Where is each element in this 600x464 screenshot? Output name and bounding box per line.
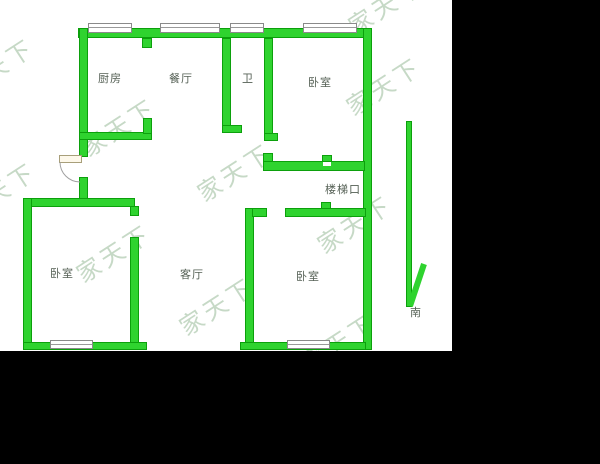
watermark: 家天下 xyxy=(68,214,158,289)
wall xyxy=(363,28,372,350)
room-label-living-room: 客厅 xyxy=(180,266,204,282)
window xyxy=(230,23,264,33)
wall xyxy=(130,206,139,216)
wall xyxy=(23,198,135,207)
wall xyxy=(322,155,332,162)
wall xyxy=(222,38,231,133)
watermark: 家天下 xyxy=(0,28,41,103)
room-label-bathroom: 卫 xyxy=(242,70,254,86)
wall xyxy=(252,208,267,217)
room-label-kitchen: 厨房 xyxy=(98,70,122,86)
window xyxy=(88,23,132,33)
room-label-bedroom-south: 卧室 xyxy=(296,268,320,284)
wall xyxy=(321,202,331,209)
window xyxy=(303,23,357,33)
window xyxy=(287,340,330,349)
wall xyxy=(264,38,273,141)
room-label-dining-room: 餐厅 xyxy=(169,70,193,86)
wall xyxy=(130,237,139,350)
room-label-bedroom-southwest: 卧室 xyxy=(50,265,74,281)
wall xyxy=(263,161,365,171)
screenshot-root: 家天下 家天下 家天下 家天下 家天下 家天下 家天下 家天下 家天下 家天下 xyxy=(0,0,600,464)
wall-notch xyxy=(323,162,331,166)
room-label-bedroom-northeast: 卧室 xyxy=(308,74,332,90)
south-label: 南 xyxy=(410,304,422,320)
wall xyxy=(23,198,32,350)
wall xyxy=(245,208,254,350)
wall xyxy=(263,153,273,162)
window xyxy=(160,23,220,33)
watermark: 家天下 xyxy=(189,133,279,208)
wall xyxy=(264,133,278,141)
entry-door-swing-icon xyxy=(56,156,84,184)
window xyxy=(50,340,93,349)
room-label-stair-landing: 楼梯口 xyxy=(325,181,361,197)
wall xyxy=(143,118,152,134)
wall xyxy=(222,125,242,133)
watermark: 家天下 xyxy=(0,152,43,227)
floorplan-canvas: 家天下 家天下 家天下 家天下 家天下 家天下 家天下 家天下 家天下 家天下 xyxy=(0,0,452,351)
watermark: 家天下 xyxy=(338,47,428,122)
wall xyxy=(285,208,366,217)
wall xyxy=(79,132,152,140)
wall xyxy=(142,38,152,48)
south-arrow-barb-icon xyxy=(402,258,428,310)
